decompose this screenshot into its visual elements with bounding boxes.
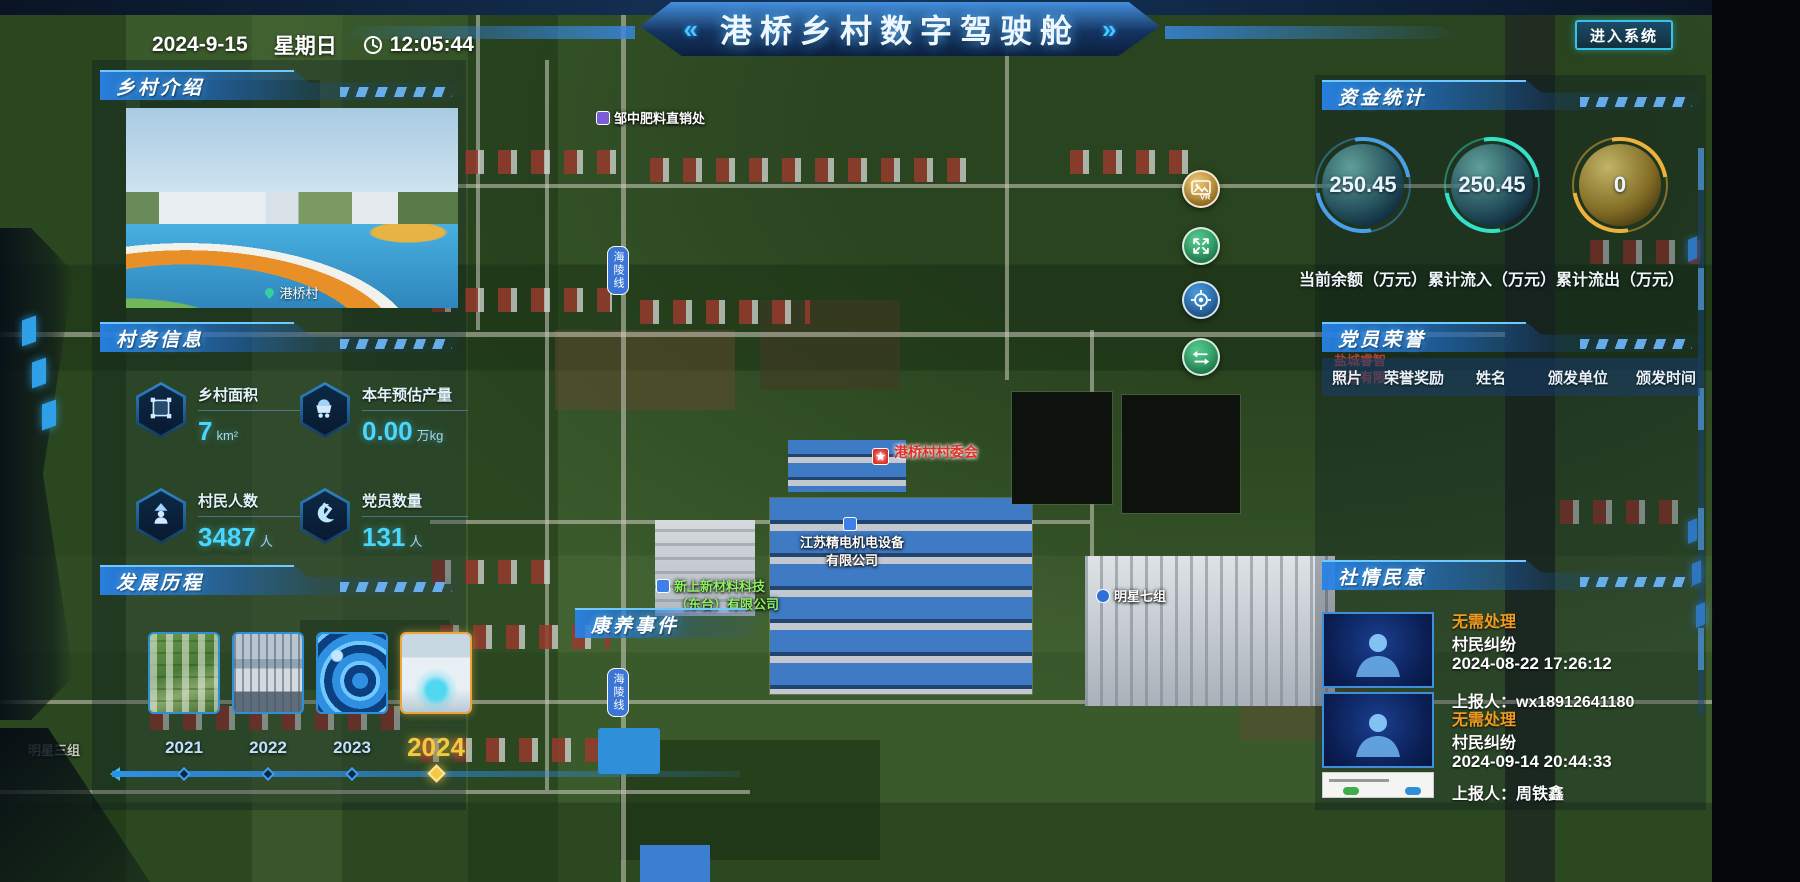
year-2024[interactable]: 2024 xyxy=(394,732,478,763)
gauge-total-inflow: 250.45 xyxy=(1444,137,1540,233)
development-header: 发展历程 xyxy=(100,565,460,595)
vr-panorama-button[interactable]: VR xyxy=(1182,170,1220,208)
tag-icon xyxy=(656,579,670,593)
sentiment-time-1: 2024-08-22 17:26:12 xyxy=(1452,654,1612,674)
title-banner: « 港桥乡村数字驾驶舱 » xyxy=(640,2,1160,56)
screen-edge xyxy=(1712,0,1800,882)
stat-estimated-output: 本年预估产量 0.00万kg xyxy=(300,372,468,460)
date-text: 2024-9-15 xyxy=(152,33,248,57)
page-title: 港桥乡村数字驾驶舱 xyxy=(720,6,1080,52)
datetime-display: 2024-9-15 星期日 12:05:44 xyxy=(152,30,474,60)
timeline-slider[interactable] xyxy=(112,771,740,777)
road-label-hailing-1: 海陵线 xyxy=(607,246,629,295)
chevron-left-icon: « xyxy=(684,14,698,45)
development-thumb-2022[interactable] xyxy=(232,632,304,714)
gauge-current-balance: 250.45 xyxy=(1315,137,1411,233)
enter-system-button[interactable]: 进入系统 xyxy=(1575,20,1673,50)
party-honor-header: 党员荣誉 xyxy=(1322,322,1700,352)
sentiment-category-2: 村民纠纷 xyxy=(1452,729,1516,753)
year-2022[interactable]: 2022 xyxy=(226,738,310,758)
shop-icon xyxy=(596,111,610,125)
stat-village-area: 乡村面积 7km² xyxy=(136,372,304,460)
party-honor-table-header: 照片 荣誉奖励 姓名 颁发单位 颁发时间 xyxy=(1322,358,1700,396)
output-cart-icon xyxy=(312,395,338,426)
sentiment-reporter-2: 上报人：周铁鑫 xyxy=(1452,780,1564,804)
sentiment-avatar-2[interactable] xyxy=(1322,692,1434,768)
map-label-village-committee: ★港桥村村委会 xyxy=(872,442,978,465)
year-2023[interactable]: 2023 xyxy=(310,738,394,758)
map-label-group7: 明星七组 xyxy=(1096,586,1166,605)
map-label-factory1: 江苏精电机电设备有限公司 xyxy=(800,516,904,570)
dashboard-screen: 邹中肥料直销处 ★港桥村村委会 江苏精电机电设备有限公司 新上新材料科技 （东台… xyxy=(0,0,1800,882)
party-member-icon xyxy=(312,501,338,532)
photo-caption: 港桥村 xyxy=(126,283,458,302)
sentiment-time-2: 2024-09-14 20:44:33 xyxy=(1452,752,1612,772)
village-intro-header: 乡村介绍 xyxy=(100,70,460,100)
factory-icon xyxy=(843,517,857,531)
map-label-fertilizer-shop: 邹中肥料直销处 xyxy=(596,108,705,127)
village-photo[interactable]: 港桥村 xyxy=(126,108,458,308)
time-text: 12:05:44 xyxy=(390,33,474,57)
development-thumb-2021[interactable] xyxy=(148,632,220,714)
weekday-text: 星期日 xyxy=(274,30,337,60)
sentiment-attachment-2[interactable] xyxy=(1322,772,1434,798)
star-marker-icon: ★ xyxy=(872,448,889,465)
switch-map-button[interactable] xyxy=(1182,338,1220,376)
area-icon xyxy=(148,395,174,426)
sentiment-status-2: 无需处理 xyxy=(1452,706,1516,730)
health-events-header: 康养事件 xyxy=(575,608,765,638)
funds-header: 资金统计 xyxy=(1322,80,1700,110)
svg-text:VR: VR xyxy=(1200,193,1211,202)
sentiment-avatar-1[interactable] xyxy=(1322,612,1434,688)
fullscreen-button[interactable] xyxy=(1182,227,1220,265)
sentiment-header: 社情民意 xyxy=(1322,560,1700,590)
place-icon xyxy=(1096,589,1110,603)
chevron-right-icon: » xyxy=(1102,14,1116,45)
gauge-label-outflow: 累计流出（万元） xyxy=(1540,266,1700,290)
development-thumb-2023[interactable] xyxy=(316,632,388,714)
villagers-icon xyxy=(148,501,174,532)
gauge-total-outflow: 0 xyxy=(1572,137,1668,233)
clock-icon xyxy=(363,35,383,55)
road-label-hailing-2: 海陵线 xyxy=(607,668,629,717)
development-thumb-2024[interactable] xyxy=(400,632,472,714)
sentiment-category-1: 村民纠纷 xyxy=(1452,631,1516,655)
stat-party-member-count: 党员数量 131人 xyxy=(300,478,468,566)
sentiment-status-1: 无需处理 xyxy=(1452,608,1516,632)
title-wing-right xyxy=(1165,26,1465,39)
stat-villager-count: 村民人数 3487人 xyxy=(136,478,304,566)
locate-button[interactable] xyxy=(1182,281,1220,319)
location-pin-icon xyxy=(264,286,277,299)
year-2021[interactable]: 2021 xyxy=(142,738,226,758)
village-info-header: 村务信息 xyxy=(100,322,460,352)
